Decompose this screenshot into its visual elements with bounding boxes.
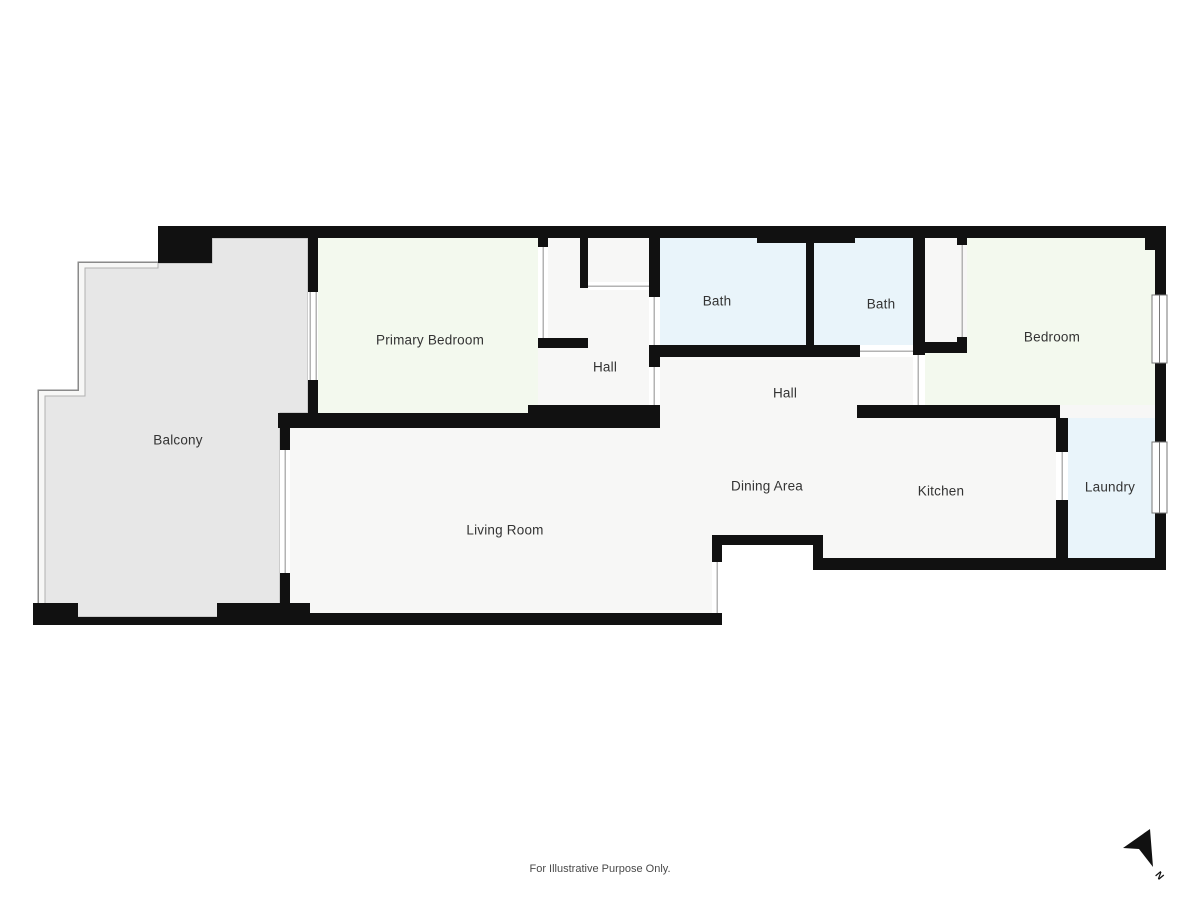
room-label-living-room: Living Room	[466, 523, 543, 538]
floor-plan: Balcony Primary Bedroom Hall Bath Bath B…	[0, 0, 1200, 900]
room-label-primary-bedroom: Primary Bedroom	[376, 333, 484, 348]
bath-1-area	[660, 238, 806, 345]
room-label-kitchen: Kitchen	[918, 484, 964, 499]
laundry-window-icon	[1152, 442, 1167, 513]
floor-plan-drawing	[0, 0, 1200, 900]
disclaimer-text: For Illustrative Purpose Only.	[529, 863, 670, 875]
room-label-balcony: Balcony	[153, 433, 202, 448]
room-label-bath-1: Bath	[703, 294, 732, 309]
north-arrow-icon	[1123, 829, 1153, 867]
room-label-bath-2: Bath	[867, 297, 896, 312]
primary-bedroom-area	[318, 238, 538, 413]
room-label-hall: Hall	[593, 360, 617, 375]
room-label-dining-area: Dining Area	[731, 479, 803, 494]
room-label-bedroom: Bedroom	[1024, 330, 1080, 345]
bath-2-area	[814, 238, 913, 345]
room-label-laundry: Laundry	[1085, 480, 1135, 495]
bedroom-window-icon	[1152, 295, 1167, 363]
room-label-hall-main: Hall	[773, 386, 797, 401]
